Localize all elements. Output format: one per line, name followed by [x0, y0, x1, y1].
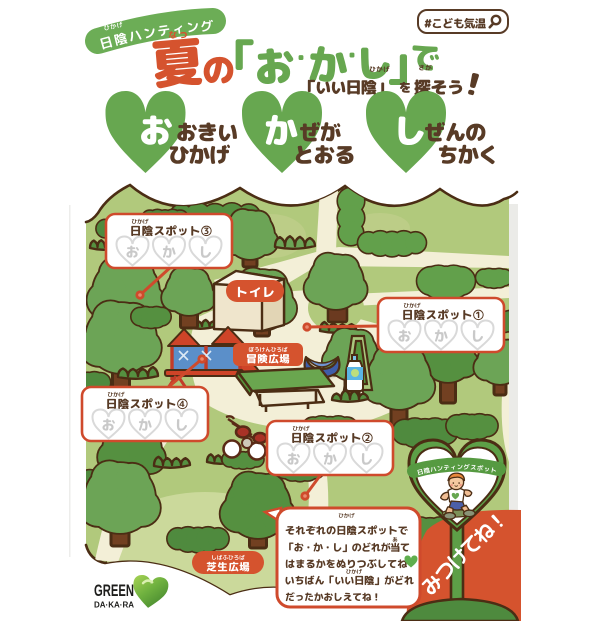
- svg-text:DA·KA·RA: DA·KA·RA: [94, 600, 134, 610]
- svg-text:GREEN: GREEN: [94, 581, 134, 600]
